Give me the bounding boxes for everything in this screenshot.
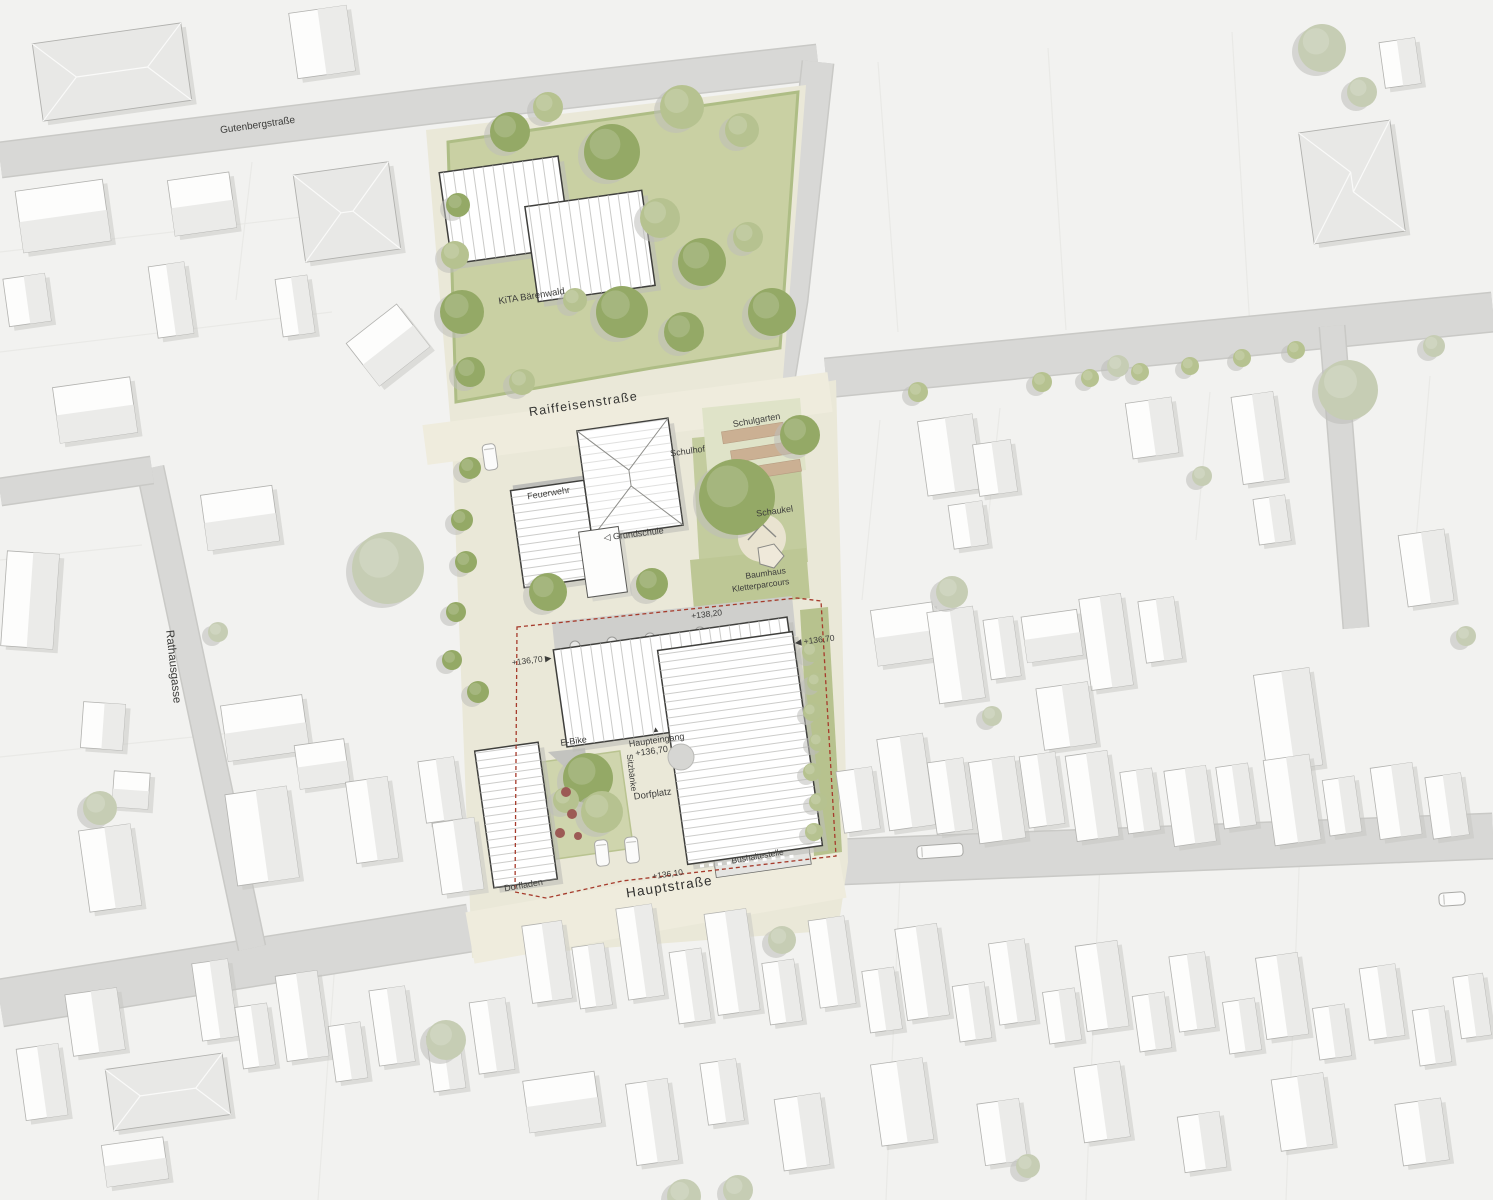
tree-highlight [601,290,630,319]
site-plan-page: Gutenbergstraße Raiffeisenstraße Hauptst… [0,0,1493,1200]
tree-highlight [1109,357,1121,369]
tree-highlight [1425,337,1437,349]
tree-highlight [726,1178,743,1195]
shrub [561,787,571,797]
building [53,377,143,447]
tree-highlight [469,683,481,695]
tree-highlight [444,652,455,663]
building [201,485,285,554]
bus [917,843,964,859]
car-windshield [922,847,923,857]
tree-highlight [448,195,461,208]
tree-highlight [807,825,817,835]
building [1021,609,1088,666]
tree-highlight [461,459,473,471]
building [79,824,147,916]
tree-highlight [1018,1156,1031,1169]
tree-highlight [809,675,819,685]
tree-highlight [430,1023,452,1045]
tree-highlight [805,765,815,775]
site-plan-map: Gutenbergstraße Raiffeisenstraße Hauptst… [0,0,1493,1200]
tree-highlight [565,290,578,303]
tree-highlight [910,384,921,395]
building [1271,1073,1338,1156]
tree-highlight [448,604,459,615]
tree-highlight [939,579,957,597]
car [594,839,610,866]
building [1299,120,1411,248]
building [293,162,405,267]
car-body [624,836,640,863]
tree-highlight [359,538,399,578]
tree-highlight [1289,343,1299,353]
label-haupteingang-marker: ▲ [651,725,660,735]
tree-highlight [210,624,221,635]
building [289,5,361,82]
tree-highlight [457,553,469,565]
building [948,501,993,553]
building [871,1058,939,1150]
building [1177,1111,1231,1176]
tree-highlight [811,795,821,805]
tree-highlight [494,115,516,137]
tree-highlight [458,360,475,377]
building [1395,1098,1454,1170]
tree-highlight [590,129,621,160]
shrub [567,809,577,819]
building [1223,998,1267,1058]
building [3,273,56,330]
building [774,1093,835,1175]
tree-highlight [568,757,596,785]
car [1439,892,1466,907]
building-roof-shade [112,789,149,810]
tree-highlight [644,201,666,223]
tree-highlight [1303,28,1329,54]
building [15,179,116,257]
tree-highlight [536,95,553,112]
car-body [1439,892,1466,907]
building [112,771,155,813]
building [1036,682,1101,755]
building [1379,38,1426,93]
tree-highlight [86,794,105,813]
tree-highlight [453,511,465,523]
shrub [574,832,582,840]
tree-highlight [1034,374,1045,385]
tree-highlight [1350,80,1367,97]
tree-highlight [1183,359,1193,369]
building [973,440,1023,501]
tree-highlight [664,89,688,113]
car [624,836,640,863]
tree-highlight [736,225,753,242]
building [80,702,130,755]
tree-highlight [1324,365,1357,398]
building [1253,495,1296,549]
tree-highlight [670,1182,689,1200]
tree-highlight [585,795,608,818]
building [225,786,304,890]
tree-highlight [1458,628,1469,639]
tree-highlight [753,292,779,318]
building [1,551,65,653]
car-windshield [1444,895,1445,905]
building [523,1071,607,1137]
tree-highlight [1235,351,1245,361]
tree-highlight [771,928,786,943]
building [1313,1004,1357,1064]
tree-highlight [668,315,690,337]
shrub [555,828,565,838]
building [1398,529,1459,611]
tree-highlight [728,116,747,135]
tree-highlight [784,418,806,440]
tree-highlight [984,708,995,719]
tree-highlight [683,242,709,268]
building [101,1137,173,1191]
tree-highlight [805,705,815,715]
tree-highlight [811,735,821,745]
building-roof-hatch [525,190,655,301]
car-body [917,843,964,859]
tree-highlight [707,465,749,507]
tree-highlight [533,576,554,597]
tree-highlight [512,371,526,385]
car-body [594,839,610,866]
building [1125,397,1183,463]
tree-highlight [1083,371,1093,381]
building [65,988,130,1061]
building [167,172,241,240]
entrance-circle [668,744,694,770]
building-roof-shade [101,703,125,750]
tree-highlight [444,294,468,318]
tree-highlight [1133,365,1143,375]
building [1043,988,1087,1048]
tree-highlight [1194,468,1205,479]
tree-highlight [444,243,459,258]
tree-highlight [639,571,657,589]
